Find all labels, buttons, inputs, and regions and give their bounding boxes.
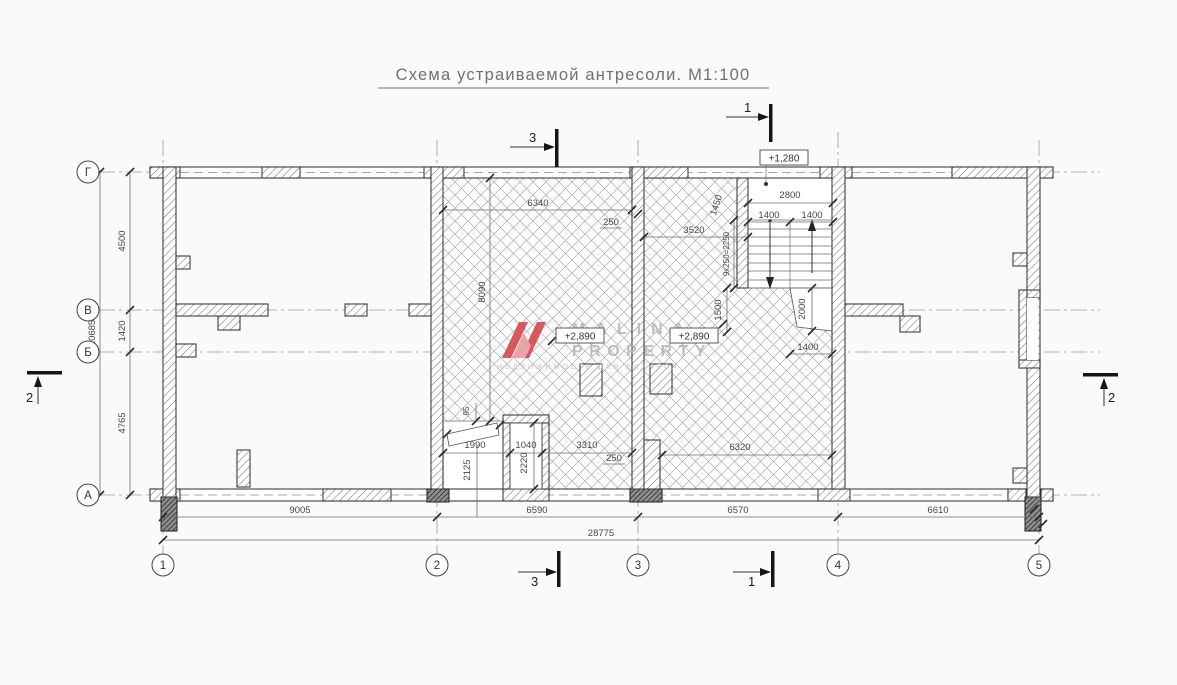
dim-label: 95 — [462, 406, 471, 415]
partition-pier — [900, 316, 920, 332]
dim-label: 1400 — [758, 210, 779, 221]
dim-label: 2220 — [519, 452, 530, 473]
stair-wall — [737, 178, 748, 288]
column-axis5-below — [1025, 497, 1041, 531]
section-arrowhead-icon — [546, 568, 557, 576]
wall-axis2 — [431, 167, 443, 489]
dim-label: 9x250=2250 — [722, 231, 731, 276]
floor-plan-svg: MALINA PROPERTY НЕДВИЖИМОСТЬ ДЛЯ БИЗНЕСА… — [0, 0, 1177, 685]
section-label: 1 — [744, 100, 751, 115]
niche-recess — [1027, 298, 1038, 360]
column-axis3 — [630, 489, 662, 502]
axis-col-label: 3 — [635, 560, 641, 572]
watermark-tagline: НЕДВИЖИМОСТЬ ДЛЯ БИЗНЕСА — [497, 362, 679, 371]
dim-label: 1420 — [117, 320, 128, 341]
column-axis1-below — [161, 497, 177, 531]
dim-label: 8090 — [477, 281, 488, 302]
dim-label: 1400 — [797, 342, 818, 353]
section-arrowhead-icon — [760, 568, 771, 576]
partition-pier — [218, 316, 240, 330]
section-label: 3 — [531, 574, 538, 589]
section-bar — [557, 551, 561, 587]
dim-label: 6340 — [527, 198, 548, 209]
dim-label: 2800 — [779, 190, 800, 201]
partition-stub — [345, 304, 367, 316]
wall-stub — [1013, 253, 1027, 266]
partition-row-v — [176, 304, 268, 316]
dim-label: 1040 — [515, 440, 536, 451]
wall-pier — [262, 167, 300, 178]
left-exterior-wall — [163, 167, 176, 497]
watermark-brand-line2: PROPERTY — [572, 343, 712, 360]
axis-col-label: 1 — [160, 560, 166, 572]
axis-col-label: 2 — [434, 560, 440, 572]
dim-label: 28775 — [588, 528, 614, 539]
section-arrowhead-icon — [758, 113, 769, 121]
section-bar — [771, 551, 775, 587]
dim-label: 6590 — [526, 505, 547, 516]
section-label: 2 — [26, 390, 33, 405]
section-bar — [1083, 373, 1118, 377]
wall-stub — [237, 450, 250, 487]
axis-row-label: Б — [84, 347, 92, 359]
level-leader-dot — [764, 182, 768, 186]
dim-label: 3310 — [576, 440, 597, 451]
section-label: 2 — [1108, 390, 1115, 405]
wall-axis3-pier — [644, 440, 660, 489]
dim-label: 250 — [606, 453, 622, 464]
niche-bottom — [1019, 360, 1040, 368]
shaft-right-wall — [542, 423, 549, 489]
section-label: 1 — [748, 574, 755, 589]
dim-label: 1990 — [464, 440, 485, 451]
section-bar — [769, 104, 773, 142]
wall-stub — [176, 344, 196, 357]
axis-row-label: В — [84, 305, 92, 317]
wall-stub — [1013, 468, 1027, 483]
section-bar — [27, 371, 62, 375]
shaft-top-wall — [503, 415, 549, 423]
partition-row-v-right — [845, 304, 903, 316]
dim-label: 1500 — [713, 299, 724, 320]
title-block: Схема устраиваемой антресоли. М1:100 — [378, 66, 769, 88]
section-label: 3 — [529, 130, 536, 145]
level-label: +1,280 — [769, 154, 800, 165]
partition-stub — [409, 304, 431, 316]
column-axis2 — [427, 489, 449, 502]
dim-label: 4765 — [117, 412, 128, 433]
drawing-sheet: MALINA PROPERTY НЕДВИЖИМОСТЬ ДЛЯ БИЗНЕСА… — [0, 0, 1177, 685]
wall-pier — [503, 489, 549, 501]
dim-label: 2000 — [797, 298, 808, 319]
dim-label: 2125 — [462, 459, 473, 480]
level-label: +2,890 — [679, 332, 710, 343]
axis-col-label: 5 — [1036, 560, 1042, 572]
section-arrowhead-icon — [34, 376, 42, 387]
axis-row-label: А — [84, 490, 92, 502]
dim-label: 3520 — [683, 225, 704, 236]
dim-label: 6320 — [729, 442, 750, 453]
level-label: +2,890 — [565, 332, 596, 343]
axis-row-label: Г — [85, 167, 92, 179]
section-bar — [555, 129, 559, 167]
dim-label: 9005 — [289, 505, 310, 516]
dim-label: 250 — [603, 217, 619, 228]
dim-label: 1400 — [801, 210, 822, 221]
wall-stub — [176, 256, 190, 269]
page-title: Схема устраиваемой антресоли. М1:100 — [396, 66, 751, 84]
dim-label: 6570 — [727, 505, 748, 516]
wall-pier — [424, 167, 464, 178]
niche-side — [1019, 290, 1027, 368]
dim-label: 4500 — [117, 230, 128, 251]
section-arrowhead-icon — [1100, 378, 1108, 389]
section-arrowhead-icon — [544, 143, 555, 151]
axis-col-label: 4 — [835, 560, 842, 572]
wall-pier — [818, 489, 850, 501]
wall-axis4 — [832, 167, 845, 489]
wall-pier — [323, 489, 391, 501]
dim-label: 6610 — [927, 505, 948, 516]
